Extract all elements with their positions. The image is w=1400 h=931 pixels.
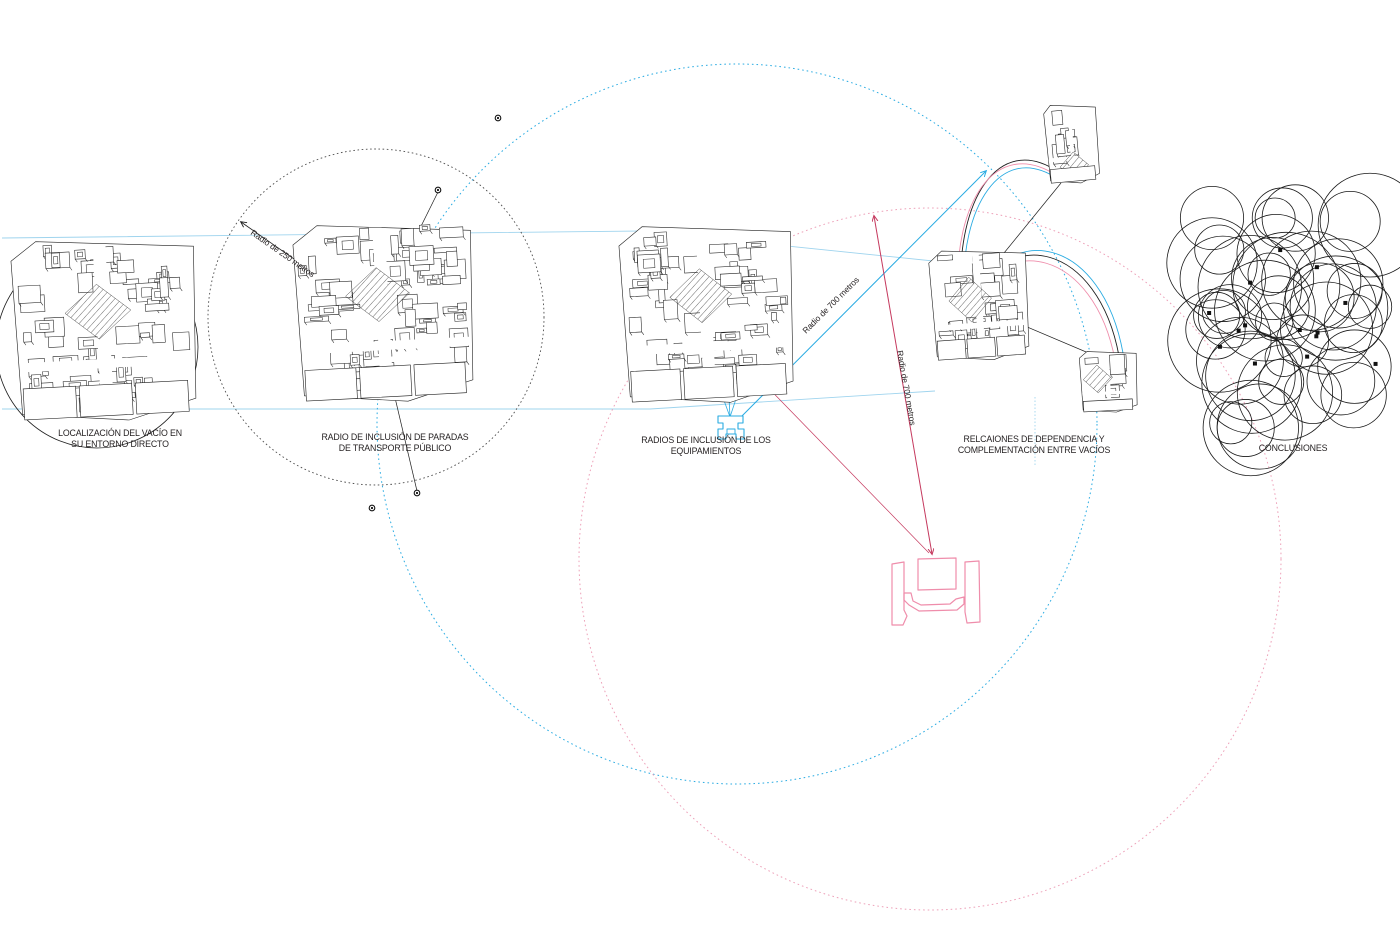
label-conclusiones: CONCLUSIONES (1259, 443, 1328, 453)
label-equipamientos: RADIOS DE INCLUSIÓN DE LOS (641, 435, 771, 445)
label-relaciones: COMPLEMENTACIÓN ENTRE VACÍOS (958, 445, 1111, 455)
city-block-4 (928, 245, 1033, 363)
city-block-1 (10, 233, 202, 425)
bus-stop-dot (414, 490, 420, 496)
label-paradas: DE TRANSPORTE PÚBLICO (339, 443, 452, 453)
label-equipamientos: EQUIPAMIENTOS (671, 446, 742, 456)
diagram-page: LOCALIZACIÓN DEL VACÍO EN SU ENTORNO DIR… (0, 0, 1400, 931)
label-localizacion: SU ENTORNO DIRECTO (71, 439, 169, 449)
bus-stop-dot (495, 115, 501, 121)
diagram-canvas: LOCALIZACIÓN DEL VACÍO EN SU ENTORNO DIR… (0, 0, 1400, 931)
label-paradas: RADIO DE INCLUSIÓN DE PARADAS (321, 432, 468, 442)
satellite-block-bottom (1079, 349, 1139, 414)
label-relaciones: RELCAIONES DE DEPENDENCIA Y (964, 434, 1105, 444)
city-block-3 (618, 219, 799, 408)
generated-art (10, 101, 1400, 475)
bus-stop-dot (435, 187, 441, 193)
city-block-2 (292, 218, 479, 407)
panel-labels: LOCALIZACIÓN DEL VACÍO EN SU ENTORNO DIR… (58, 428, 1327, 456)
pink-void-plan (892, 558, 980, 625)
label-localizacion: LOCALIZACIÓN DEL VACÍO EN (58, 428, 182, 438)
satellite-block-top (1043, 101, 1102, 185)
conclusions-cluster (1167, 173, 1400, 475)
bus-stop-dot (369, 505, 375, 511)
radius-700-red-label: Radio de 700 metros (895, 350, 918, 426)
